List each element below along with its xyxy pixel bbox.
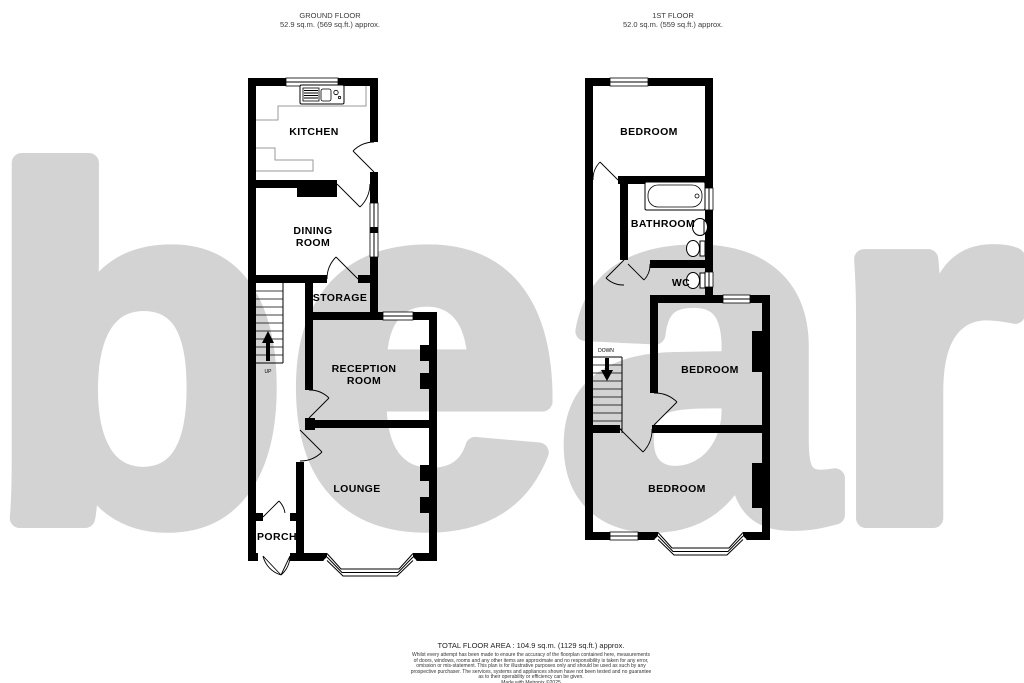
toilet-icon-bathroom xyxy=(687,241,706,257)
kitchen-sink-icon xyxy=(300,85,344,104)
footer: TOTAL FLOOR AREA : 104.9 sq.m. (1129 sq.… xyxy=(411,641,652,683)
room-label-bedroom-middle: BEDROOM xyxy=(681,364,739,376)
room-label-wc: WC xyxy=(672,277,690,289)
total-floor-area: TOTAL FLOOR AREA : 104.9 sq.m. (1129 sq.… xyxy=(411,641,652,650)
bathtub-icon xyxy=(645,182,705,210)
down-arrow-icon xyxy=(605,358,609,371)
room-label-reception-1: RECEPTION xyxy=(332,363,397,375)
watermark-text: bear xyxy=(0,74,1023,622)
room-label-bathroom: BATHROOM xyxy=(631,218,695,230)
room-label-lounge: LOUNGE xyxy=(333,483,380,495)
room-label-porch: PORCH xyxy=(257,531,297,543)
floorplan-page: GROUND FLOOR 52.9 sq.m. (569 sq.ft.) app… xyxy=(0,0,1024,683)
room-label-bedroom-top: BEDROOM xyxy=(620,126,678,138)
room-label-reception-2: ROOM xyxy=(347,375,381,387)
floorplan-canvas: bear xyxy=(0,0,1024,683)
room-label-dining-1: DINING xyxy=(293,225,332,237)
room-label-kitchen: KITCHEN xyxy=(289,126,338,138)
up-arrow-icon xyxy=(266,342,270,361)
room-label-dining-2: ROOM xyxy=(296,237,330,249)
room-label-bedroom-bottom: BEDROOM xyxy=(648,483,706,495)
room-label-storage: STORAGE xyxy=(313,292,368,304)
stairs-down-label: DOWN xyxy=(598,348,614,354)
stairs-up-label: UP xyxy=(265,369,273,375)
